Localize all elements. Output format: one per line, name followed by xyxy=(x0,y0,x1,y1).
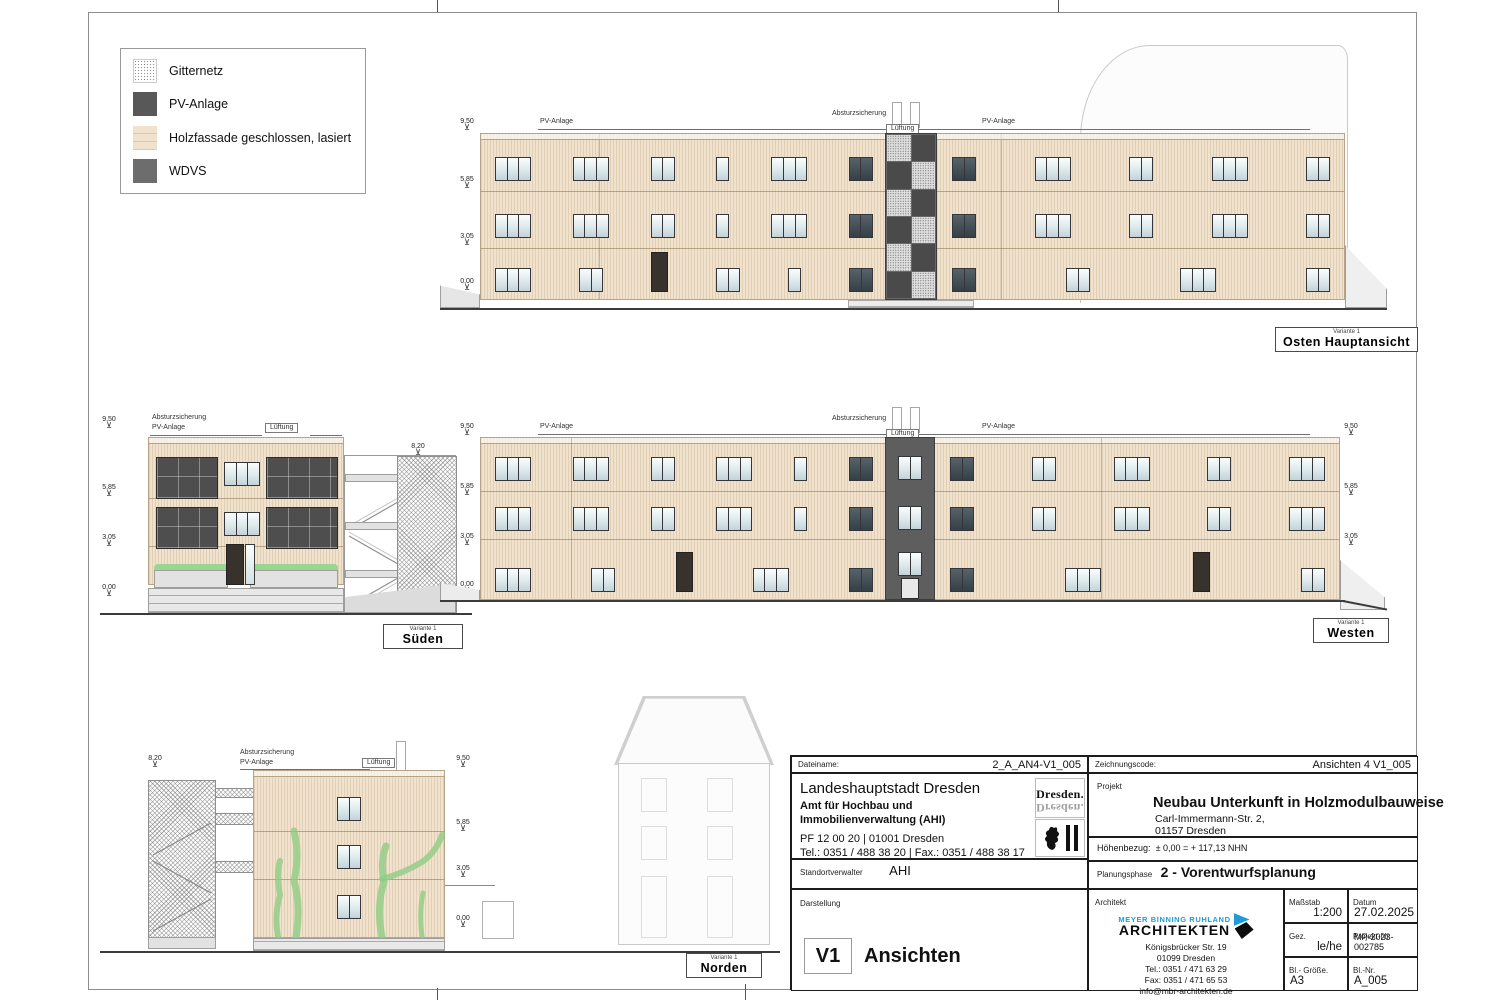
entrance-door xyxy=(651,252,668,292)
trim-mark xyxy=(745,984,746,1000)
window-row xyxy=(950,507,1325,531)
annotation-pv: PV-Anlage xyxy=(982,423,1015,431)
level-mark-icon: ⊻ xyxy=(450,872,476,878)
window xyxy=(1032,507,1056,531)
window-row xyxy=(952,214,1330,238)
window-dark xyxy=(952,268,976,292)
window xyxy=(337,895,361,919)
tb-blnr: Bl.-Nr. A_005 xyxy=(1348,957,1418,991)
level-mark-icon: ⊻ xyxy=(450,762,476,768)
window xyxy=(1032,457,1056,481)
level-mark: 9,50⊻ xyxy=(454,118,480,131)
window xyxy=(573,214,609,238)
leader-line xyxy=(150,435,262,436)
window xyxy=(573,507,609,531)
level-mark: 3,05⊻ xyxy=(1338,533,1364,546)
level-mark: 5,85⊻ xyxy=(450,819,476,832)
mbr-logo: MEYER BINNING RUHLAND ARCHITEKTEN xyxy=(1095,913,1277,939)
window-row xyxy=(495,553,873,596)
window-dark xyxy=(849,214,873,238)
window-dark xyxy=(849,268,873,292)
walkway xyxy=(215,861,254,873)
window-row xyxy=(952,157,1330,181)
railing xyxy=(445,885,495,886)
legend: Gitternetz PV-Anlage Holzfassade geschlo… xyxy=(120,48,366,194)
window xyxy=(1212,214,1248,238)
window xyxy=(794,507,807,531)
window xyxy=(337,797,361,821)
window xyxy=(716,268,740,292)
level-mark: 9,50⊻ xyxy=(454,423,480,436)
window xyxy=(651,457,675,481)
dresden-logo: Dresden. Dresden. xyxy=(1035,778,1085,818)
window xyxy=(495,568,531,592)
plinth xyxy=(148,588,344,613)
leader-line xyxy=(980,129,1310,130)
level-mark: 3,05⊻ xyxy=(96,534,122,547)
trim-mark xyxy=(437,988,438,1000)
stair-tower xyxy=(148,780,216,940)
window-dark xyxy=(952,214,976,238)
window xyxy=(1289,507,1325,531)
view-label-norden: Variante 1 Norden xyxy=(686,953,762,978)
level-mark-icon: ⊻ xyxy=(454,125,480,131)
window xyxy=(716,214,729,238)
trim-mark xyxy=(1058,0,1059,12)
window-dark xyxy=(849,157,873,181)
window xyxy=(1306,157,1330,181)
walkway xyxy=(215,813,254,825)
window-row xyxy=(495,157,873,181)
legend-item: WDVS xyxy=(133,159,353,183)
window-row xyxy=(495,214,873,238)
window-dark xyxy=(950,507,974,531)
level-mark: 8,20⊻ xyxy=(142,755,168,768)
tb-blgroesse: Bl.- Größe. A3 xyxy=(1284,957,1348,991)
window-dark xyxy=(950,568,974,592)
title-block: Dateiname: 2_A_AN4-V1_005 Zeichnungscode… xyxy=(790,755,1417,990)
window xyxy=(1035,214,1071,238)
darstellung-title: Ansichten xyxy=(864,945,961,968)
pv-panel xyxy=(266,457,338,499)
annotation-absturz: Absturzsicherung xyxy=(832,110,886,118)
window xyxy=(716,157,729,181)
view-label-osten: Variante 1 Osten Hauptansicht xyxy=(1275,327,1418,352)
tb-hoehenbezug: Höhenbezug: ± 0,00 = + 117,13 NHN xyxy=(1088,837,1418,861)
legend-label: PV-Anlage xyxy=(169,97,228,111)
level-mark-icon: ⊻ xyxy=(454,430,480,436)
wood-swatch-icon xyxy=(133,126,157,150)
window xyxy=(1066,268,1090,292)
level-mark: 3,05⊻ xyxy=(454,533,480,546)
legend-item: Gitternetz xyxy=(133,59,353,83)
legend-label: WDVS xyxy=(169,164,207,178)
window xyxy=(1301,568,1325,592)
window xyxy=(1035,157,1071,181)
level-mark-icon: ⊻ xyxy=(454,240,480,246)
annotation-pv: PV-Anlage xyxy=(540,118,573,126)
level-mark: 0,00⊻ xyxy=(450,915,476,928)
level-mark: 5,85⊻ xyxy=(96,484,122,497)
vent-pipe xyxy=(396,741,406,771)
walkway xyxy=(215,788,254,798)
annotation-pv: PV-Anlage xyxy=(540,423,573,431)
window xyxy=(495,214,531,238)
tb-dateiname: Dateiname: 2_A_AN4-V1_005 xyxy=(791,756,1088,773)
wdvs-swatch-icon xyxy=(133,159,157,183)
window xyxy=(716,507,752,531)
tb-planungsphase: Planungsphase 2 - Vorentwurfsplanung xyxy=(1088,861,1418,889)
window xyxy=(495,457,531,481)
level-mark: 0,00⊻ xyxy=(454,278,480,291)
annotation-absturz: Absturzsicherung xyxy=(152,414,206,422)
level-mark-icon: ⊻ xyxy=(454,540,480,546)
annotation-absturz: Absturzsicherung xyxy=(832,415,886,423)
existing-building-outline xyxy=(618,763,770,945)
leader-line xyxy=(538,434,1048,435)
pv-swatch-icon xyxy=(133,92,157,116)
window xyxy=(591,568,615,592)
window xyxy=(224,462,260,486)
window xyxy=(224,512,260,536)
tb-gez: Gez. le/he xyxy=(1284,923,1348,957)
window-row xyxy=(495,507,873,531)
annotation-pv: PV-Anlage xyxy=(152,424,185,432)
drawing-sheet: Gitternetz PV-Anlage Holzfassade geschlo… xyxy=(0,0,1499,1000)
tower-base xyxy=(148,937,216,949)
trim-mark xyxy=(437,0,438,12)
legend-item: PV-Anlage xyxy=(133,92,353,116)
window-row xyxy=(495,253,873,296)
ground-line xyxy=(440,600,1345,602)
level-mark: 9,50⊻ xyxy=(450,755,476,768)
pv-panel xyxy=(156,507,218,549)
window xyxy=(651,507,675,531)
level-mark-icon: ⊻ xyxy=(96,423,122,429)
window-dark xyxy=(849,457,873,481)
window-dark xyxy=(849,568,873,592)
window xyxy=(495,507,531,531)
tb-architekt: Architekt MEYER BINNING RUHLAND ARCHITEK… xyxy=(1088,889,1284,991)
tb-darstellung: Darstellung V1 Ansichten xyxy=(791,889,1088,991)
shaft-entrance xyxy=(901,578,919,599)
window xyxy=(716,457,752,481)
view-sueden-elevation: Absturzsicherung PV-Anlage Lüftung 9,50⊻… xyxy=(100,410,480,660)
window xyxy=(788,268,801,292)
entrance-door xyxy=(1193,552,1210,592)
window xyxy=(573,157,609,181)
legend-label: Holzfassade geschlossen, lasiert xyxy=(169,131,351,145)
ramp xyxy=(1345,245,1387,308)
view-westen-elevation: PV-Anlage Absturzsicherung PV-Anlage Lüf… xyxy=(440,405,1390,620)
window xyxy=(1306,268,1330,292)
level-mark: 0,00⊻ xyxy=(96,584,122,597)
mesh-swatch-icon xyxy=(133,59,157,83)
window-row xyxy=(952,253,1330,296)
level-mark: 5,85⊻ xyxy=(454,176,480,189)
window xyxy=(1306,214,1330,238)
window-dark xyxy=(952,157,976,181)
leader-line xyxy=(538,129,1048,130)
entrance-door xyxy=(226,544,244,585)
level-mark-icon: ⊻ xyxy=(142,762,168,768)
window-dark xyxy=(849,507,873,531)
window xyxy=(1065,568,1101,592)
window-row xyxy=(950,553,1325,596)
dresden-coat-of-arms-icon xyxy=(1035,819,1085,857)
annotation-pv: PV-Anlage xyxy=(240,759,273,767)
window xyxy=(1129,214,1153,238)
tb-projekt: Projekt Neubau Unterkunft in Holzmodulba… xyxy=(1088,773,1418,837)
level-mark-icon: ⊻ xyxy=(450,922,476,928)
window xyxy=(337,845,361,869)
tb-standortverwalter: Standortverwalter AHI xyxy=(791,859,1088,889)
pv-panel xyxy=(156,457,218,499)
level-mark-icon: ⊻ xyxy=(454,490,480,496)
level-mark: 3,05⊻ xyxy=(450,865,476,878)
pv-panel xyxy=(266,507,338,549)
mbr-arrow-icon xyxy=(1234,913,1254,939)
annotation-lueftung: Lüftung xyxy=(265,423,298,433)
window xyxy=(495,268,531,292)
stair-shaft xyxy=(885,437,935,600)
window-dark xyxy=(950,457,974,481)
window xyxy=(1289,457,1325,481)
level-mark-icon: ⊻ xyxy=(1338,540,1364,546)
view-norden-elevation: Absturzsicherung PV-Anlage Lüftung 9,50⊻… xyxy=(100,685,800,985)
ground-line xyxy=(440,308,1387,310)
window-row xyxy=(495,457,873,481)
small-annex xyxy=(482,901,514,939)
entrance-door xyxy=(676,552,693,592)
level-mark: 5,85⊻ xyxy=(1338,483,1364,496)
view-label-westen: Variante 1 Westen xyxy=(1313,618,1389,643)
window xyxy=(573,457,609,481)
window xyxy=(1212,157,1248,181)
tb-projektnr: Projekt-Nr. MP-2023-002785 xyxy=(1348,923,1418,957)
window xyxy=(771,157,807,181)
window xyxy=(1207,507,1231,531)
level-mark-icon: ⊻ xyxy=(1338,490,1364,496)
window xyxy=(771,214,807,238)
window xyxy=(1207,457,1231,481)
client-dept: Amt für Hochbau und Immobilienverwaltung… xyxy=(800,800,1025,828)
window xyxy=(579,268,603,292)
leader-line xyxy=(310,435,342,436)
level-mark-icon: ⊻ xyxy=(450,826,476,832)
ground-line xyxy=(100,613,472,615)
tb-datum: Datum 27.02.2025 xyxy=(1348,889,1418,923)
view-osten-elevation: PV-Anlage Absturzsicherung PV-Anlage Lüf… xyxy=(440,40,1390,330)
legend-item: Holzfassade geschlossen, lasiert xyxy=(133,126,353,150)
ground-line xyxy=(100,951,780,953)
existing-building-roof xyxy=(616,692,772,765)
level-mark-icon: ⊻ xyxy=(96,541,122,547)
entrance-steps xyxy=(848,300,974,308)
level-mark: 9,50⊻ xyxy=(1338,423,1364,436)
window-row xyxy=(950,457,1325,481)
stair-shaft xyxy=(885,133,937,300)
annotation-lueftung: Lüftung xyxy=(362,758,395,768)
tb-massstab: Maßstab 1:200 xyxy=(1284,889,1348,923)
window xyxy=(495,157,531,181)
annotation-absturz: Absturzsicherung xyxy=(240,749,294,757)
window xyxy=(1180,268,1216,292)
window xyxy=(1114,507,1150,531)
darstellung-code: V1 xyxy=(804,938,852,974)
level-mark-icon: ⊻ xyxy=(454,183,480,189)
tb-client: Landeshauptstadt Dresden Amt für Hochbau… xyxy=(791,773,1088,859)
window xyxy=(1129,157,1153,181)
level-mark: 5,85⊻ xyxy=(454,483,480,496)
planter xyxy=(154,570,228,588)
window xyxy=(1114,457,1150,481)
view-label-sueden: Variante 1 Süden xyxy=(383,624,463,649)
legend-label: Gitternetz xyxy=(169,64,223,78)
annotation-pv: PV-Anlage xyxy=(982,118,1015,126)
tb-zeichnungscode: Zeichnungscode: Ansichten 4 V1_005 xyxy=(1088,756,1418,773)
level-mark-icon: ⊻ xyxy=(1338,430,1364,436)
level-mark: 3,05⊻ xyxy=(454,233,480,246)
window xyxy=(651,157,675,181)
level-mark-icon: ⊻ xyxy=(96,591,122,597)
door-sidelight xyxy=(245,544,255,585)
plinth xyxy=(253,938,445,951)
window xyxy=(651,214,675,238)
level-mark: 9,50⊻ xyxy=(96,416,122,429)
planter xyxy=(250,570,338,588)
window xyxy=(753,568,789,592)
window xyxy=(794,457,807,481)
level-mark-icon: ⊻ xyxy=(96,491,122,497)
leader-line xyxy=(980,434,1310,435)
